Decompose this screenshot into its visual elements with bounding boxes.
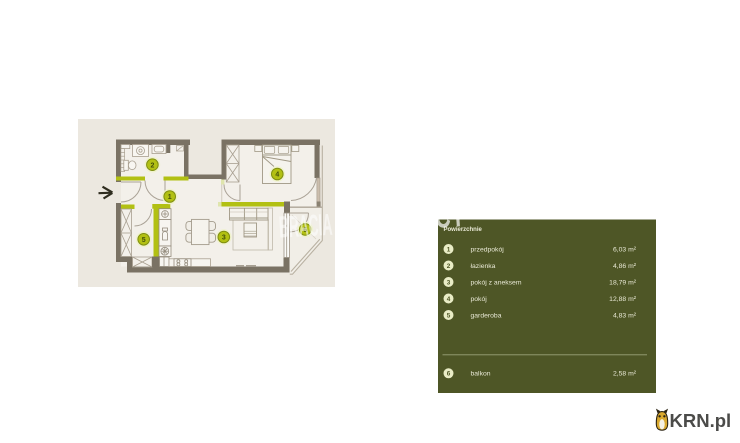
svg-text:2: 2 bbox=[150, 162, 154, 169]
svg-text:6,03 m²: 6,03 m² bbox=[613, 246, 637, 253]
svg-text:BRACIA SADURSCY: BRACIA SADURSCY bbox=[278, 205, 413, 245]
svg-text:18,79 m²: 18,79 m² bbox=[609, 279, 637, 286]
svg-text:4: 4 bbox=[275, 172, 279, 179]
svg-text:12,88 m²: 12,88 m² bbox=[609, 296, 637, 303]
svg-text:2,58 m²: 2,58 m² bbox=[613, 371, 637, 378]
svg-text:4: 4 bbox=[447, 296, 451, 303]
svg-text:łazienka: łazienka bbox=[471, 263, 496, 270]
svg-text:5: 5 bbox=[142, 237, 146, 244]
svg-text:4,83 m²: 4,83 m² bbox=[613, 312, 637, 319]
svg-text:1: 1 bbox=[447, 246, 451, 253]
svg-text:garderoba: garderoba bbox=[471, 312, 502, 319]
svg-text:przedpokój: przedpokój bbox=[471, 246, 505, 253]
svg-text:4,86 m²: 4,86 m² bbox=[613, 263, 637, 270]
svg-text:5: 5 bbox=[447, 312, 451, 319]
svg-text:2: 2 bbox=[447, 263, 451, 270]
svg-text:3: 3 bbox=[222, 235, 226, 242]
svg-text:balkon: balkon bbox=[471, 371, 491, 378]
svg-text:pokój z aneksem: pokój z aneksem bbox=[471, 279, 522, 286]
svg-text:pokój: pokój bbox=[471, 296, 488, 303]
svg-text:KRN.pl: KRN.pl bbox=[670, 410, 732, 431]
svg-text:1: 1 bbox=[168, 194, 172, 201]
svg-text:CY: CY bbox=[433, 196, 466, 235]
svg-text:3: 3 bbox=[447, 279, 451, 286]
svg-text:6: 6 bbox=[447, 371, 451, 378]
